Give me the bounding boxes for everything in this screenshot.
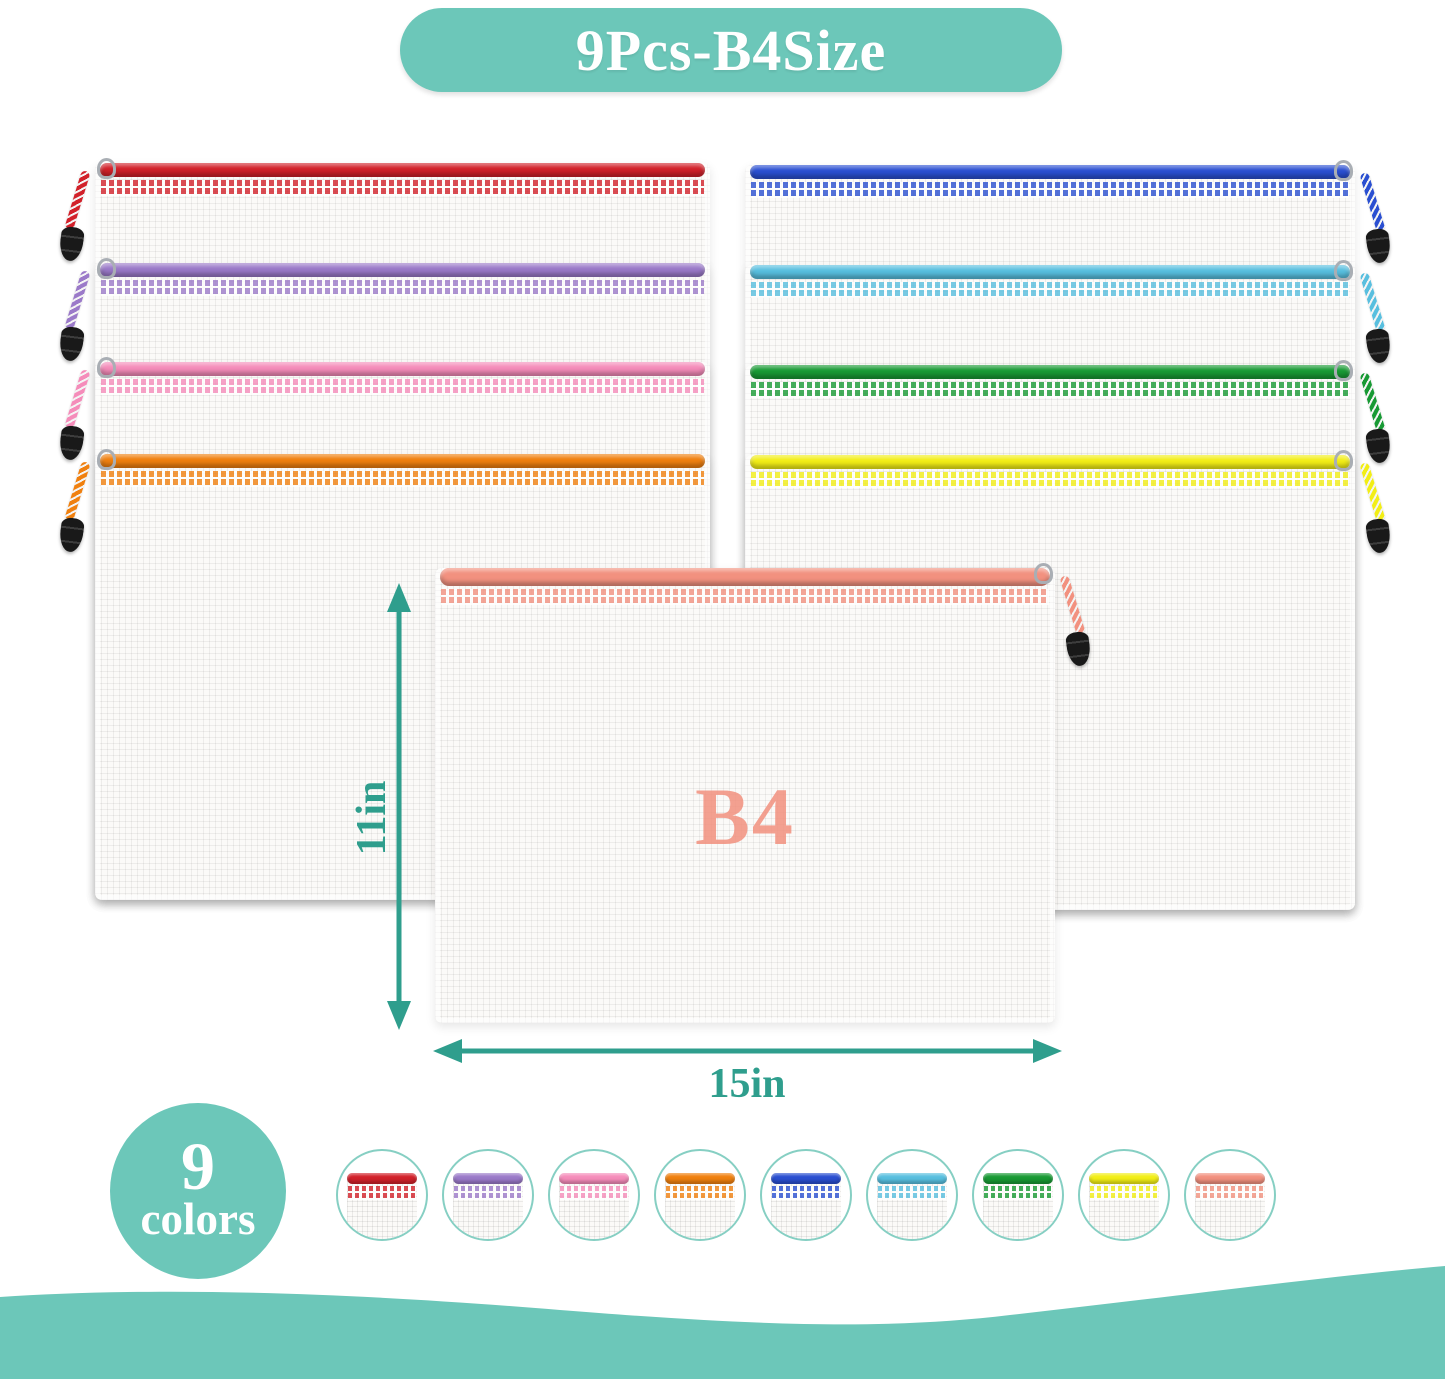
size-label: B4 [435,776,1055,858]
mini-mesh-band [984,1186,1052,1200]
zipper-slider-loop [1034,563,1053,584]
swatch-purple [442,1149,534,1241]
product-showcase: 9Pcs-B4Size B4 11in 15in 9 colors [0,0,1445,1379]
mini-pouch [983,1173,1053,1241]
mini-mesh-band [772,1186,840,1200]
color-count-badge: 9 colors [110,1103,286,1279]
mini-zipper-strip [665,1173,735,1184]
mini-pouch [347,1173,417,1241]
wave-shape [0,1266,1445,1379]
mini-zipper-strip [983,1173,1053,1184]
mesh-band [441,589,1049,605]
mini-zipper-strip [453,1173,523,1184]
mini-pouch [771,1173,841,1241]
mini-pouch [1089,1173,1159,1241]
swatch-sky-blue [866,1149,958,1241]
color-count-word: colors [141,1196,256,1243]
mini-mesh-band [560,1186,628,1200]
mini-pouch [877,1173,947,1241]
mini-mesh-band [666,1186,734,1200]
mini-zipper-strip [347,1173,417,1184]
mini-zipper-strip [1195,1173,1265,1184]
swatch-yellow [1078,1149,1170,1241]
height-dimension-label: 11in [348,743,396,893]
mini-pouch [1195,1173,1265,1241]
color-count-number: 9 [181,1138,215,1196]
swatch-green [972,1149,1064,1241]
mini-mesh-band [878,1186,946,1200]
swatch-blue [760,1149,852,1241]
swatch-salmon [1184,1149,1276,1241]
swatch-red [336,1149,428,1241]
mini-mesh-band [454,1186,522,1200]
swatch-orange [654,1149,746,1241]
mini-mesh-band [348,1186,416,1200]
mini-mesh-band [1090,1186,1158,1200]
mini-zipper-strip [771,1173,841,1184]
front-pouch-b4: B4 [435,568,1055,1023]
color-swatch-row [336,1149,1276,1241]
mini-pouch [453,1173,523,1241]
mini-mesh-band [1196,1186,1264,1200]
mini-pouch [559,1173,629,1241]
mini-zipper-strip [1089,1173,1159,1184]
zipper-strip [440,568,1050,586]
width-dimension-label: 15in [597,1060,897,1108]
swatch-pink [548,1149,640,1241]
mini-zipper-strip [877,1173,947,1184]
mini-pouch [665,1173,735,1241]
mini-zipper-strip [559,1173,629,1184]
